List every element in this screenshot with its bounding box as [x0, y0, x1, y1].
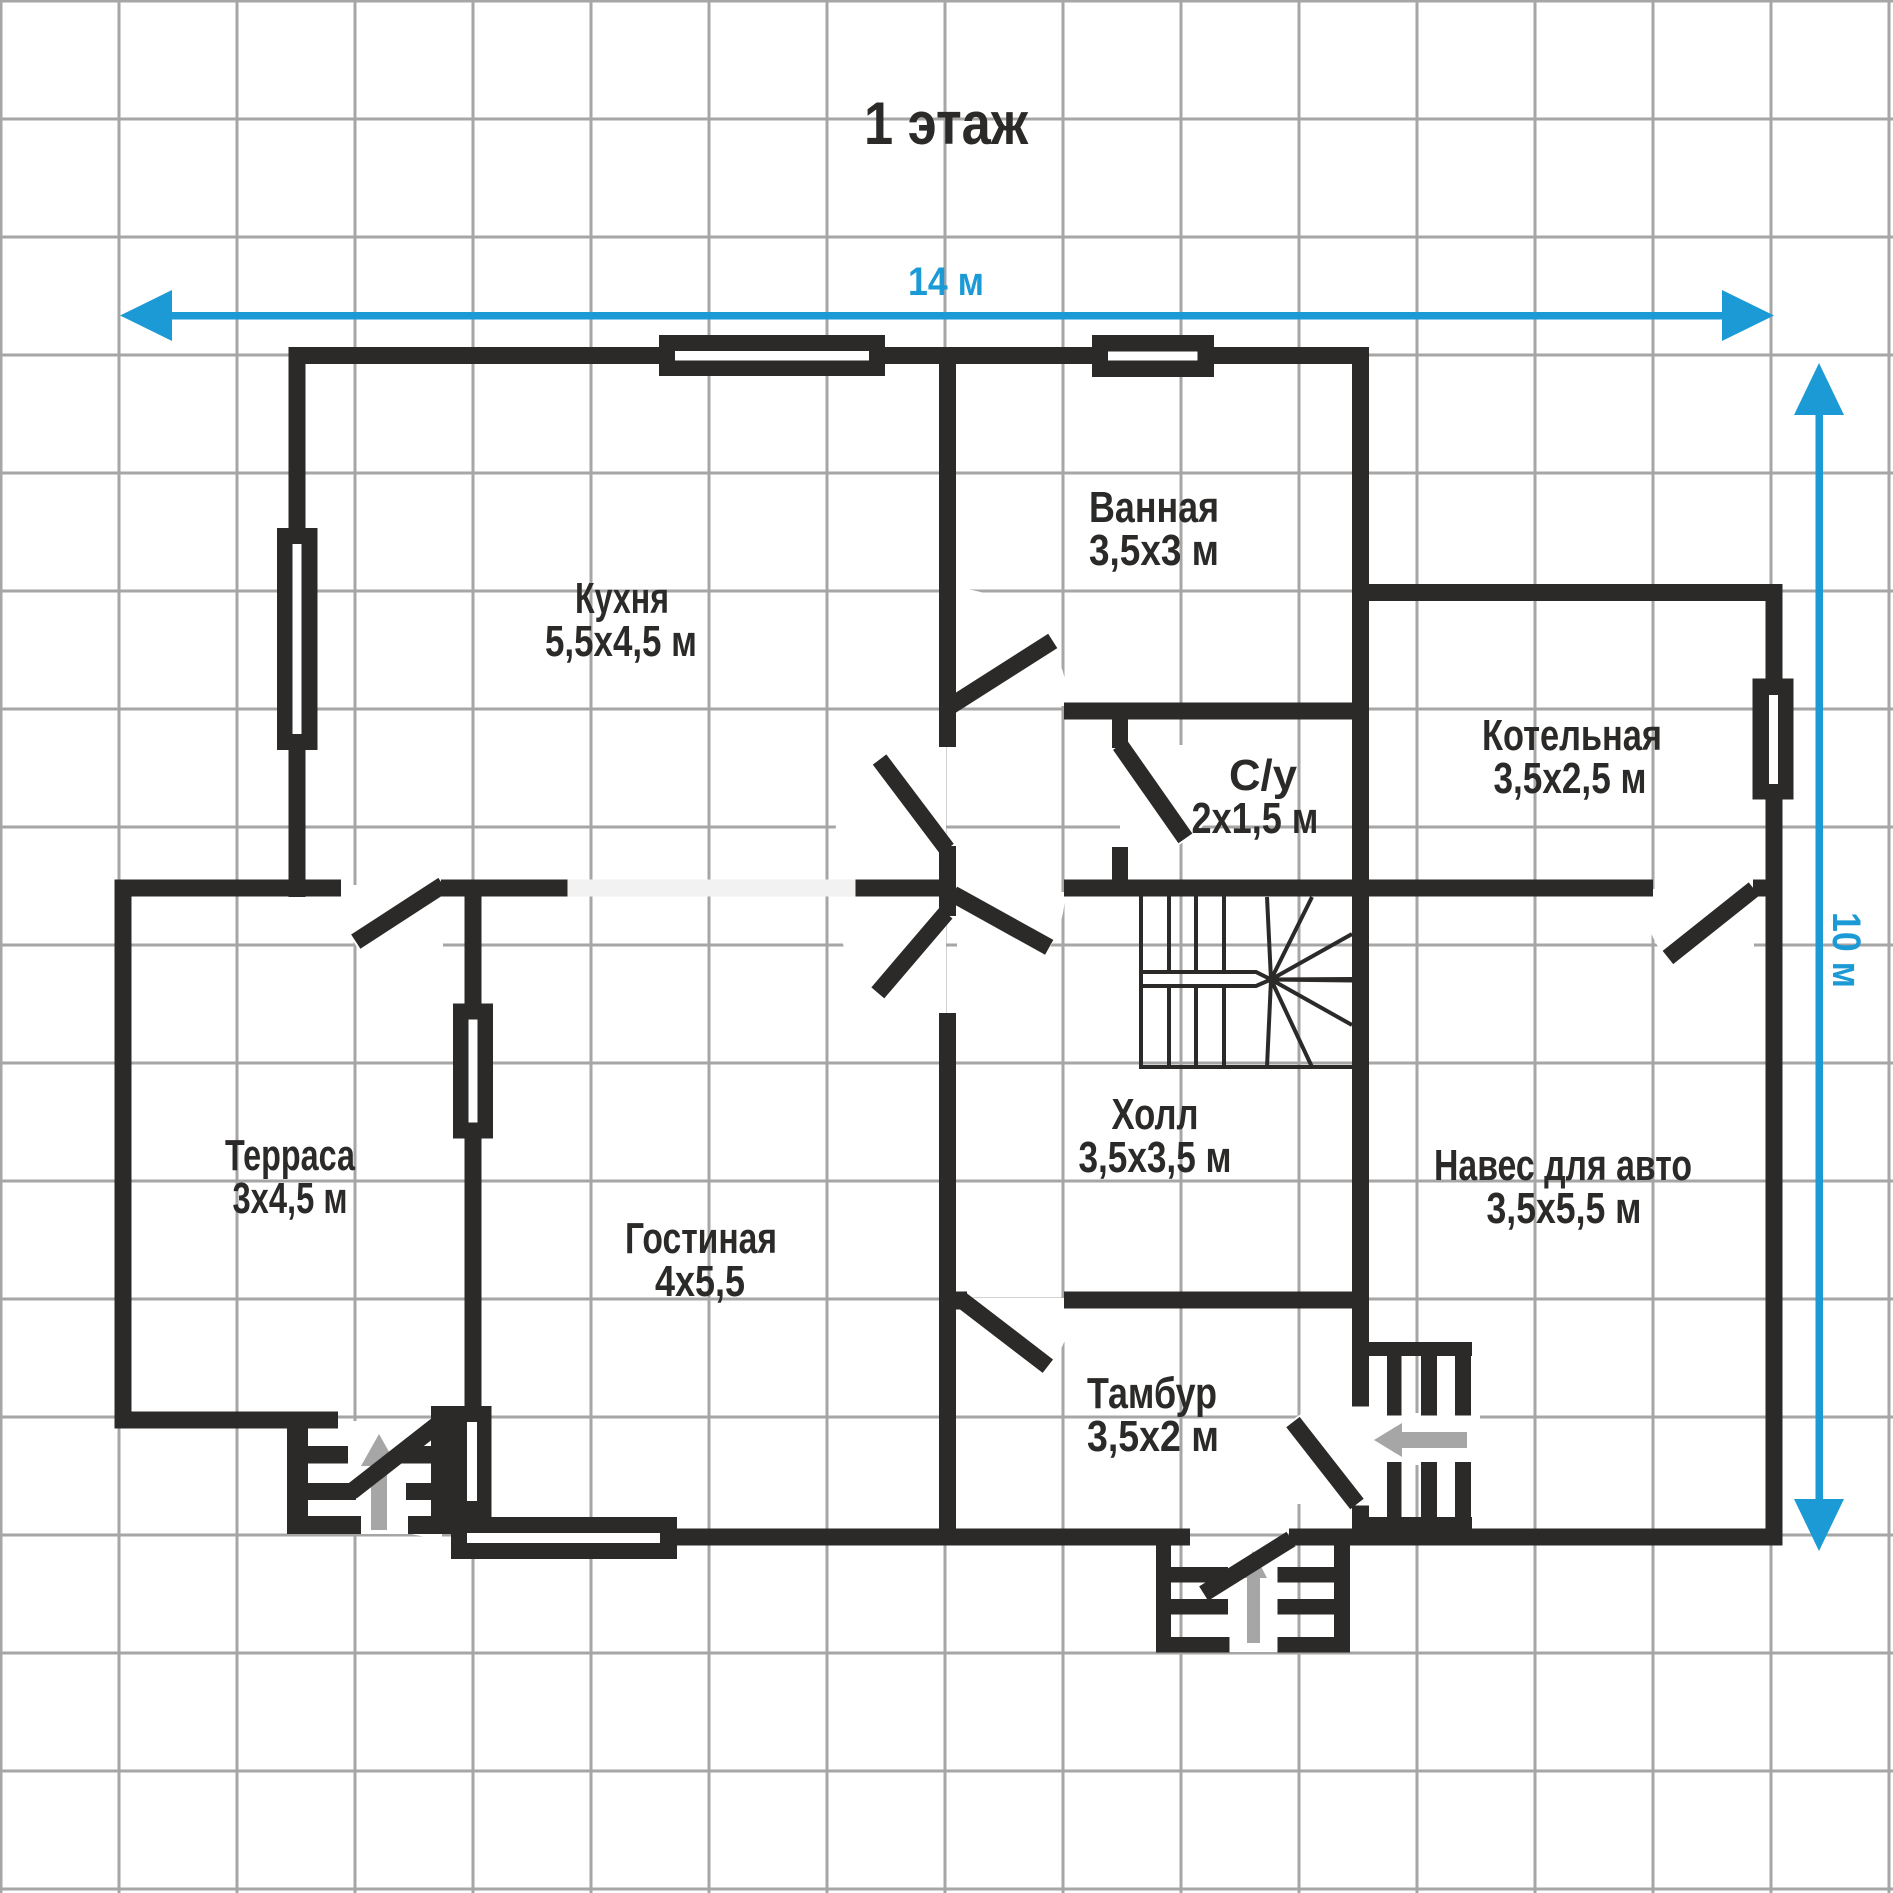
- svg-text:5,5х4,5 м: 5,5х4,5 м: [545, 617, 697, 666]
- svg-text:Холл: Холл: [1112, 1090, 1199, 1139]
- svg-text:4х5,5: 4х5,5: [655, 1257, 745, 1306]
- svg-text:Кухня: Кухня: [575, 574, 669, 623]
- svg-text:Котельная: Котельная: [1482, 711, 1662, 760]
- svg-text:Гостиная: Гостиная: [625, 1214, 777, 1263]
- svg-text:Терраса: Терраса: [225, 1131, 355, 1180]
- svg-text:3,5х3 м: 3,5х3 м: [1089, 526, 1219, 575]
- svg-text:14 м: 14 м: [908, 260, 984, 304]
- svg-text:3х4,5 м: 3х4,5 м: [233, 1174, 348, 1223]
- svg-text:3,5х2,5 м: 3,5х2,5 м: [1494, 754, 1647, 803]
- svg-text:С/у: С/у: [1229, 751, 1298, 800]
- svg-text:10 м: 10 м: [1824, 912, 1868, 988]
- svg-text:2х1,5 м: 2х1,5 м: [1192, 794, 1319, 843]
- svg-text:3,5х3,5 м: 3,5х3,5 м: [1079, 1133, 1232, 1182]
- svg-text:Ванная: Ванная: [1089, 483, 1219, 532]
- svg-text:Тамбур: Тамбур: [1087, 1369, 1217, 1418]
- svg-text:Навес для авто: Навес для авто: [1434, 1141, 1692, 1190]
- svg-text:1 этаж: 1 этаж: [864, 90, 1029, 157]
- svg-text:3,5х2 м: 3,5х2 м: [1087, 1412, 1219, 1461]
- svg-text:3,5х5,5 м: 3,5х5,5 м: [1487, 1184, 1642, 1233]
